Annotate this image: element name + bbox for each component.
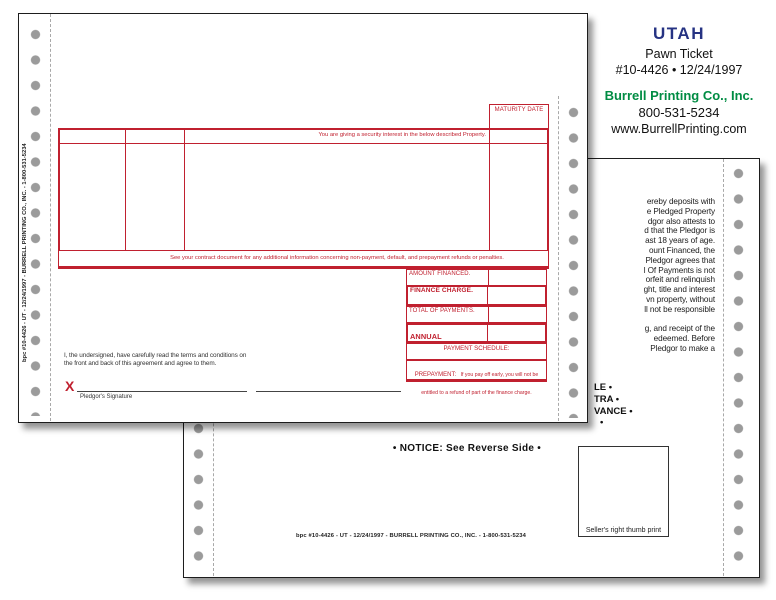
text-line: orfeit and relinquish	[589, 275, 715, 285]
signature-x-mark: X	[65, 378, 74, 394]
grid-line	[489, 128, 490, 250]
perforation-line-right	[723, 159, 724, 576]
total-of-payments-value-box	[489, 307, 546, 322]
company-phone: 800-531-5234	[598, 105, 760, 120]
finance-charge-value-box	[488, 287, 545, 304]
maturity-date-box: MATURITY DATE	[489, 104, 549, 131]
notice-reverse-side: • NOTICE: See Reverse Side •	[367, 443, 567, 454]
tractor-holes-left	[30, 28, 41, 416]
text-line: Pledgor to make a	[589, 344, 715, 354]
finance-charge-cell: FINANCE CHARGE. The dollar amount the cr…	[408, 287, 488, 304]
text-line: e Pledged Property	[589, 207, 715, 217]
total-of-payments-cell: TOTAL OF PAYMENTS. Amount required to re…	[407, 307, 489, 322]
edge-imprint-vertical: bpc #10-4426 - UT - 12/24/1997 - BURRELL…	[22, 143, 28, 362]
description-grid	[58, 128, 549, 268]
text-line: Pledgor agrees that	[589, 256, 715, 266]
text-line: ll not be responsible	[589, 305, 715, 315]
grid-line	[58, 143, 549, 144]
thumb-print-box: Seller's right thumb print	[578, 446, 669, 537]
prepayment-label: PREPAYMENT:	[415, 372, 456, 378]
perforation-line-left	[50, 14, 51, 421]
back-terms-paragraph: ereby deposits withe Pledged Propertydgo…	[589, 197, 715, 354]
text-line: dgor also attests to	[589, 217, 715, 227]
text-line: d that the Pledgor is	[589, 226, 715, 236]
total-of-payments-row: TOTAL OF PAYMENTS. Amount required to re…	[406, 306, 547, 323]
contract-note-row: See your contract document for any addit…	[58, 250, 549, 269]
company-website: www.BurrellPrinting.com	[598, 122, 760, 136]
tractor-holes-right	[568, 106, 579, 418]
security-interest-note: You are giving a security interest in th…	[318, 132, 486, 138]
text-line: ount Financed, the	[589, 246, 715, 256]
apr-label: ANNUAL PERCENTAGE RATE.	[410, 332, 462, 341]
perforation-line-right	[558, 96, 559, 421]
signature-line	[77, 391, 247, 392]
text-line: g, and receipt of the	[589, 324, 715, 334]
amount-financed-row: AMOUNT FINANCED. The amount of cash give…	[406, 269, 547, 286]
prepayment-row: PREPAYMENT: If you pay off early, you wi…	[406, 360, 547, 382]
text-line: edeemed. Before	[589, 334, 715, 344]
tractor-holes-right	[733, 167, 744, 571]
text-line	[589, 315, 715, 325]
text-line: TRA •	[594, 394, 714, 406]
product-info-block: UTAH Pawn Ticket #10-4426 • 12/24/1997 B…	[598, 24, 760, 136]
signature-line-2	[256, 391, 401, 392]
amount-financed-cell: AMOUNT FINANCED. The amount of cash give…	[407, 270, 489, 285]
text-line: ast 18 years of age.	[589, 236, 715, 246]
state-title: UTAH	[598, 24, 760, 44]
amount-financed-label: AMOUNT FINANCED.	[409, 271, 486, 278]
contract-note-text: See your contract document for any addit…	[126, 255, 548, 261]
finance-charge-row: FINANCE CHARGE. The dollar amount the cr…	[406, 285, 547, 306]
apr-row: ANNUAL PERCENTAGE RATE. The cost of your…	[406, 323, 547, 343]
item-number-date: #10-4426 • 12/24/1997	[598, 63, 760, 77]
text-line: vn property, without	[589, 295, 715, 305]
finance-charge-label: FINANCE CHARGE.	[410, 288, 485, 295]
prepayment-text: PREPAYMENT: If you pay off early, you wi…	[410, 362, 543, 400]
payment-schedule-label: PAYMENT SCHEDULE:	[407, 345, 546, 352]
maturity-date-label: MATURITY DATE	[490, 105, 548, 113]
front-form-sheet: bpc #10-4426 - UT - 12/24/1997 - BURRELL…	[18, 13, 588, 423]
payment-schedule-row: PAYMENT SCHEDULE: Total of Payments is d…	[406, 343, 547, 360]
text-line: •	[600, 417, 714, 429]
product-name: Pawn Ticket	[598, 47, 760, 61]
back-footer-imprint: bpc #10-4426 - UT - 12/24/1997 - BURRELL…	[291, 533, 531, 539]
company-name: Burrell Printing Co., Inc.	[598, 88, 760, 103]
amount-financed-value-box	[489, 270, 546, 285]
total-of-payments-label: TOTAL OF PAYMENTS.	[409, 308, 486, 315]
signature-label: Pledgor's Signature	[80, 394, 132, 400]
agreement-text: I, the undersigned, have carefully read …	[64, 352, 256, 368]
text-line: ereby deposits with	[589, 197, 715, 207]
back-bullet-list: LE •TRA •VANCE ••	[594, 382, 714, 429]
apr-value-box	[488, 325, 545, 341]
grid-line	[184, 128, 185, 250]
text-line: l Of Payments is not	[589, 266, 715, 276]
grid-line	[125, 128, 126, 250]
text-line: ght, title and interest	[589, 285, 715, 295]
thumb-print-label: Seller's right thumb print	[579, 527, 668, 534]
apr-cell: ANNUAL PERCENTAGE RATE. The cost of your…	[408, 325, 488, 341]
text-line: VANCE •	[594, 406, 714, 418]
text-line: LE •	[594, 382, 714, 394]
